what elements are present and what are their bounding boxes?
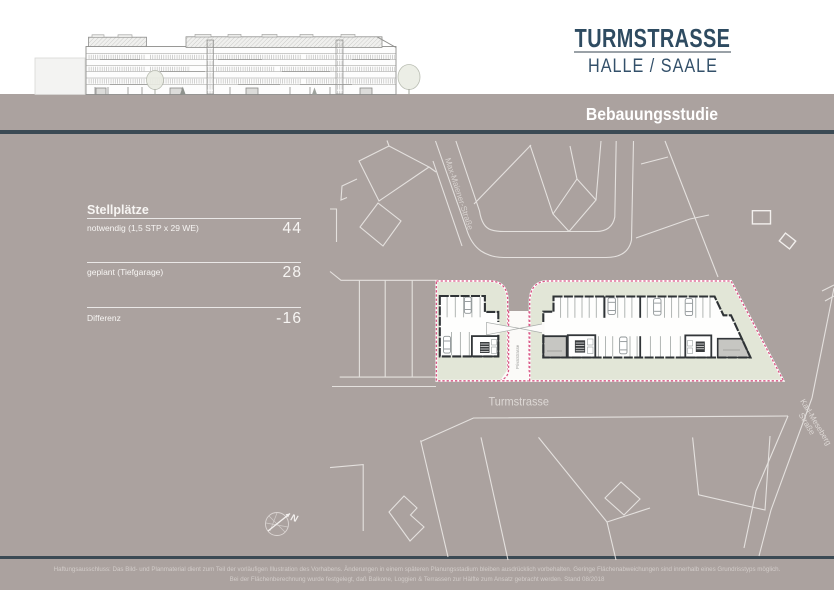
svg-text:Turmstrasse: Turmstrasse — [489, 395, 550, 409]
svg-text:Privatstrasse: Privatstrasse — [515, 344, 520, 369]
svg-text:Max-Maiener-Straße: Max-Maiener-Straße — [443, 157, 475, 232]
svg-text:N: N — [289, 512, 300, 525]
